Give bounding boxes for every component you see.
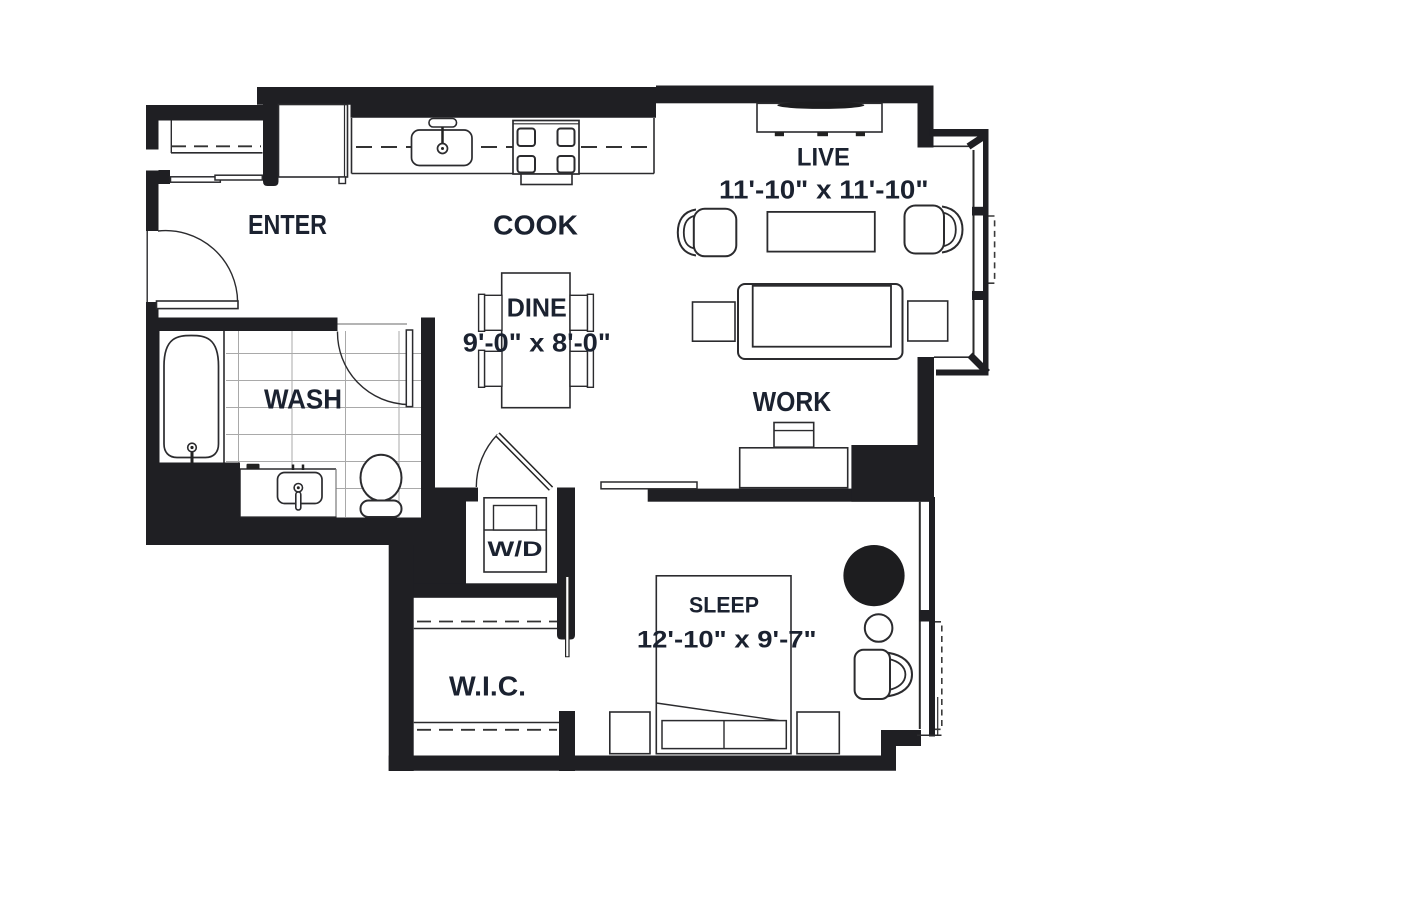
svg-text:12'-10" x 9'-7": 12'-10" x 9'-7" <box>637 626 817 653</box>
svg-text:WASH: WASH <box>264 384 342 415</box>
svg-text:DINE: DINE <box>507 295 567 323</box>
svg-text:W.I.C.: W.I.C. <box>449 671 526 702</box>
svg-text:SLEEP: SLEEP <box>689 593 759 618</box>
svg-text:WORK: WORK <box>753 386 832 417</box>
svg-text:W/D: W/D <box>488 537 543 561</box>
svg-text:COOK: COOK <box>493 210 578 241</box>
svg-text:9'-0" x 8'-0": 9'-0" x 8'-0" <box>463 328 611 358</box>
svg-text:11'-10" x 11'-10": 11'-10" x 11'-10" <box>719 176 929 204</box>
svg-text:ENTER: ENTER <box>248 209 327 240</box>
svg-text:LIVE: LIVE <box>797 143 850 171</box>
